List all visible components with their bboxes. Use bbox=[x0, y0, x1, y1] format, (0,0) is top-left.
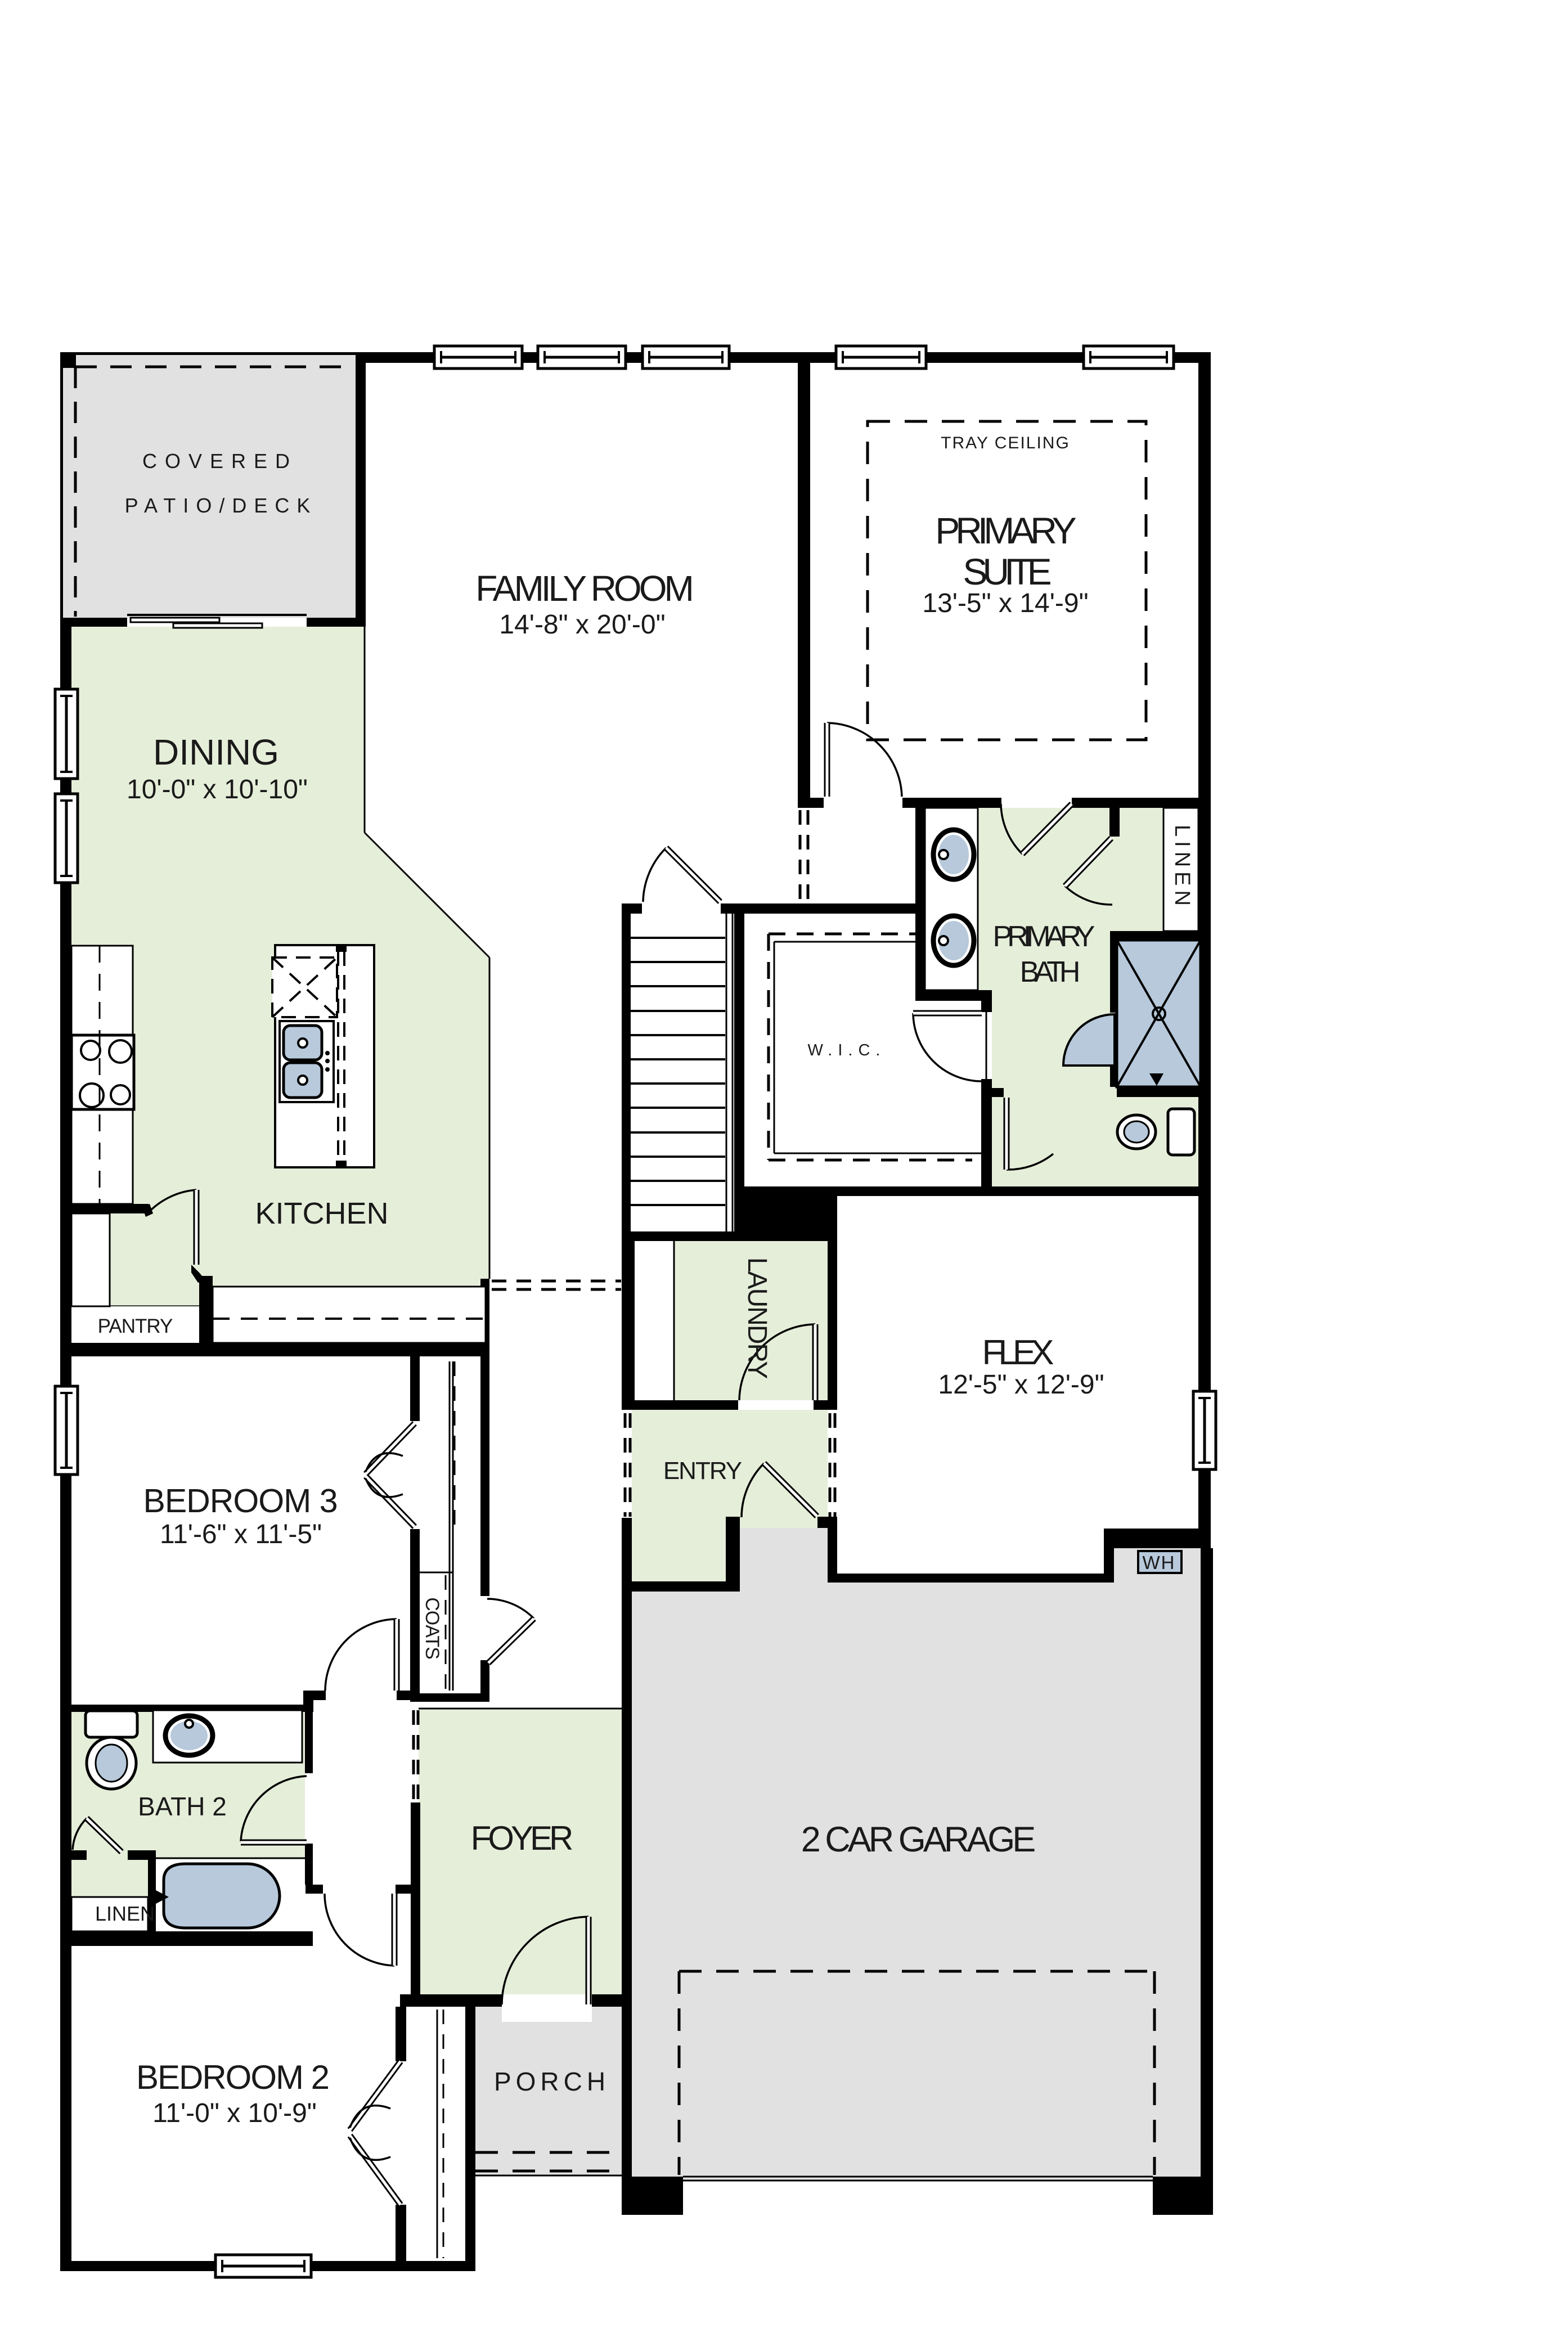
svg-text:DINING: DINING bbox=[153, 732, 279, 772]
svg-text:PANTRY: PANTRY bbox=[98, 1315, 173, 1337]
svg-text:14'-8" x 20'-0": 14'-8" x 20'-0" bbox=[499, 610, 665, 640]
svg-text:11'-0" x 10'-9": 11'-0" x 10'-9" bbox=[152, 2098, 317, 2128]
svg-text:ENTRY: ENTRY bbox=[663, 1457, 742, 1485]
svg-text:PRIMARY: PRIMARY bbox=[993, 920, 1095, 953]
svg-text:COATS: COATS bbox=[421, 1597, 443, 1659]
svg-text:BEDROOM 3: BEDROOM 3 bbox=[143, 1482, 337, 1520]
svg-text:10'-0" x 10'-10": 10'-0" x 10'-10" bbox=[127, 775, 308, 804]
svg-text:11'-6" x 11'-5": 11'-6" x 11'-5" bbox=[160, 1520, 322, 1549]
svg-text:KITCHEN: KITCHEN bbox=[255, 1197, 388, 1230]
svg-text:2 CAR GARAGE: 2 CAR GARAGE bbox=[801, 1820, 1035, 1859]
svg-text:PRIMARY: PRIMARY bbox=[935, 510, 1076, 551]
svg-text:BATH: BATH bbox=[1020, 956, 1079, 988]
svg-text:BATH 2: BATH 2 bbox=[138, 1792, 227, 1821]
svg-text:WH: WH bbox=[1143, 1552, 1176, 1573]
svg-text:FOYER: FOYER bbox=[471, 1819, 572, 1857]
svg-text:LINEN: LINEN bbox=[95, 1902, 155, 1925]
svg-text:LAUNDRY: LAUNDRY bbox=[742, 1257, 772, 1379]
svg-text:13'-5" x 14'-9": 13'-5" x 14'-9" bbox=[922, 588, 1088, 618]
svg-text:W.I.C.: W.I.C. bbox=[808, 1041, 886, 1059]
svg-text:PORCH: PORCH bbox=[494, 2067, 610, 2096]
svg-text:FAMILY ROOM: FAMILY ROOM bbox=[475, 568, 691, 609]
svg-text:COVERED: COVERED bbox=[142, 449, 298, 473]
svg-text:LINEN: LINEN bbox=[1170, 825, 1194, 910]
svg-text:BEDROOM 2: BEDROOM 2 bbox=[136, 2058, 329, 2096]
svg-text:PATIO/DECK: PATIO/DECK bbox=[125, 494, 318, 517]
svg-text:SUITE: SUITE bbox=[963, 551, 1050, 592]
svg-text:FLEX: FLEX bbox=[982, 1333, 1054, 1372]
svg-text:12'-5" x 12'-9": 12'-5" x 12'-9" bbox=[938, 1370, 1104, 1400]
svg-text:TRAY CEILING: TRAY CEILING bbox=[941, 434, 1070, 452]
